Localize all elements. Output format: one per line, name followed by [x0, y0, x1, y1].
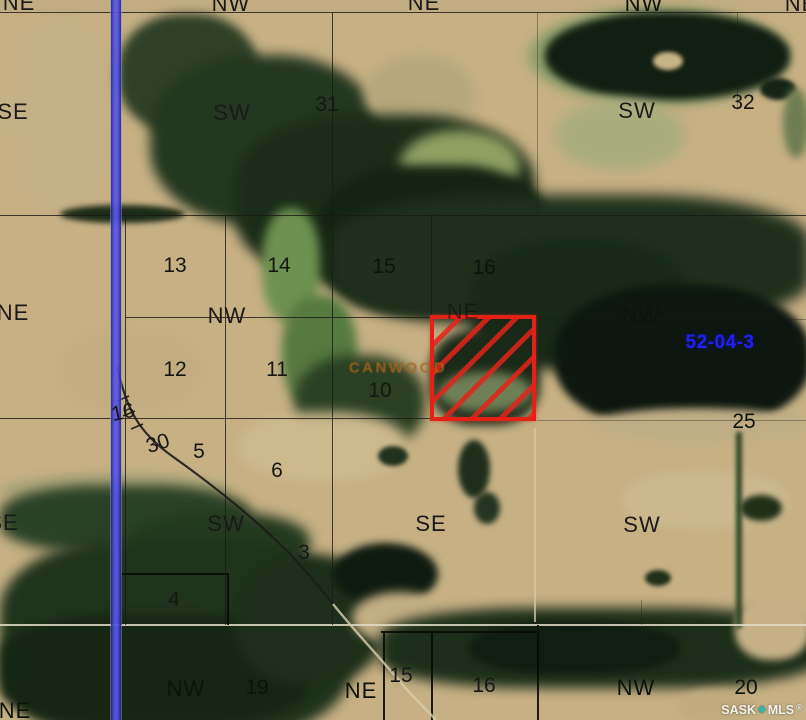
map-label: 3	[298, 541, 310, 565]
map-label: 10	[368, 379, 391, 403]
map-label: SW	[207, 511, 244, 537]
map-label: NE	[0, 698, 31, 720]
map-label: NW	[167, 676, 206, 702]
map-label: SE	[0, 99, 29, 125]
map-label: 6	[271, 459, 283, 483]
watermark-mls-text: MLS	[768, 703, 794, 717]
map-label: 31	[315, 93, 338, 117]
map-label: NE	[408, 0, 441, 16]
map-labels-layer: NENWNENWNESESW31SW3213141516NENWNENW52-0…	[0, 0, 806, 720]
map-label: 25	[732, 410, 755, 434]
map-label: NW	[622, 303, 661, 329]
map-label: NE	[785, 0, 806, 17]
map-label: SW	[213, 100, 250, 126]
map-label: NE	[3, 0, 36, 16]
mls-diamond-icon: ◆	[758, 705, 766, 715]
map-label: 13	[163, 254, 186, 278]
map-label: NW	[625, 0, 664, 17]
map-label: 16	[109, 399, 137, 427]
map-label: SW	[618, 98, 655, 124]
map-label: 20	[734, 676, 757, 700]
map-label: SE	[415, 511, 446, 537]
map-label: SE	[0, 510, 19, 536]
registered-trademark-symbol: ®	[796, 703, 802, 712]
map-label: 52-04-3	[686, 332, 755, 354]
map-label: NE	[0, 300, 29, 326]
map-label: 5	[193, 440, 205, 464]
map-label: 30	[143, 429, 173, 459]
map-label: NW	[212, 0, 251, 17]
satellite-map[interactable]: NENWNENWNESESW31SW3213141516NENWNENW52-0…	[0, 0, 806, 720]
map-label: 4	[168, 588, 180, 612]
map-label: NE	[447, 299, 480, 325]
map-label: CANWOOD	[349, 360, 447, 377]
map-label: SW	[623, 512, 660, 538]
map-label: NW	[208, 303, 247, 329]
sask-mls-watermark: SASK ◆ MLS ®	[721, 703, 802, 717]
map-label: NE	[345, 678, 378, 704]
map-label: 12	[163, 358, 186, 382]
map-label: 16	[472, 256, 495, 280]
map-label: 14	[267, 254, 290, 278]
map-label: NW	[617, 675, 656, 701]
map-label: 11	[266, 358, 288, 382]
map-label: 15	[372, 255, 395, 279]
map-label: 16	[472, 674, 495, 698]
map-label: 32	[731, 91, 754, 115]
map-label: 19	[245, 676, 268, 700]
watermark-sask-text: SASK	[721, 703, 756, 717]
map-label: 15	[389, 664, 412, 688]
